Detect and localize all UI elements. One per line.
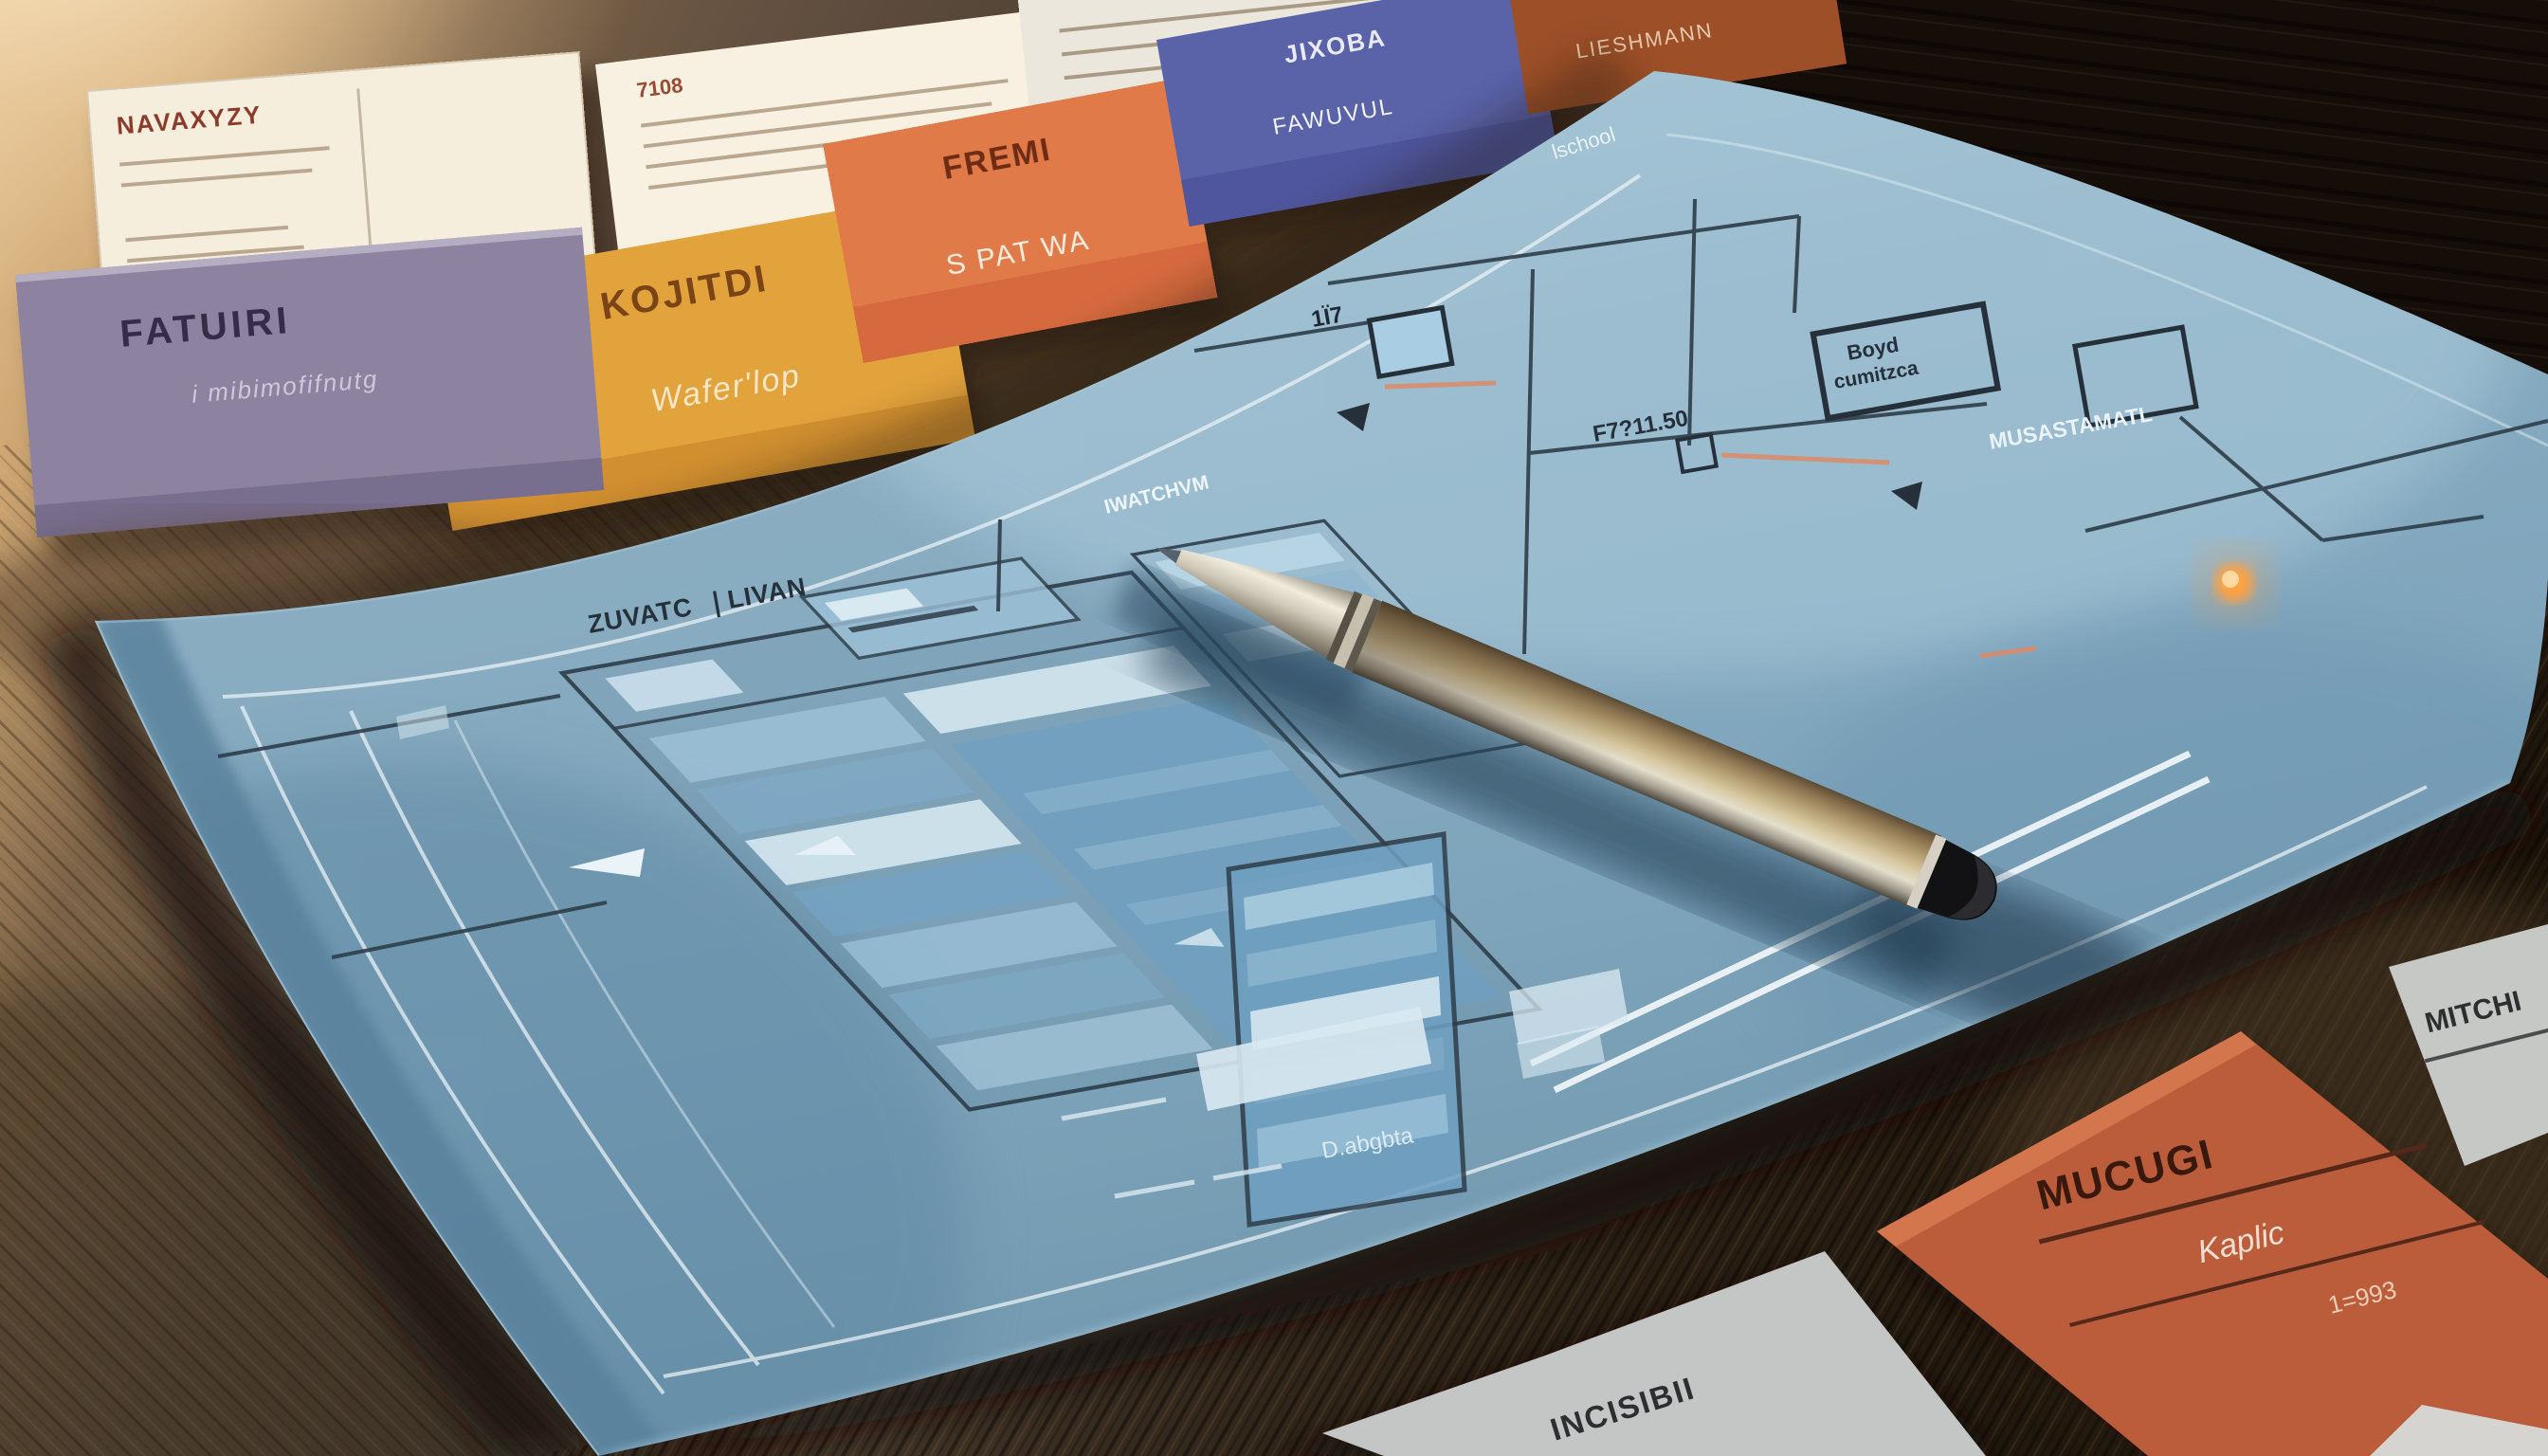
- svg-text:1Ї7: 1Ї7: [1309, 302, 1345, 333]
